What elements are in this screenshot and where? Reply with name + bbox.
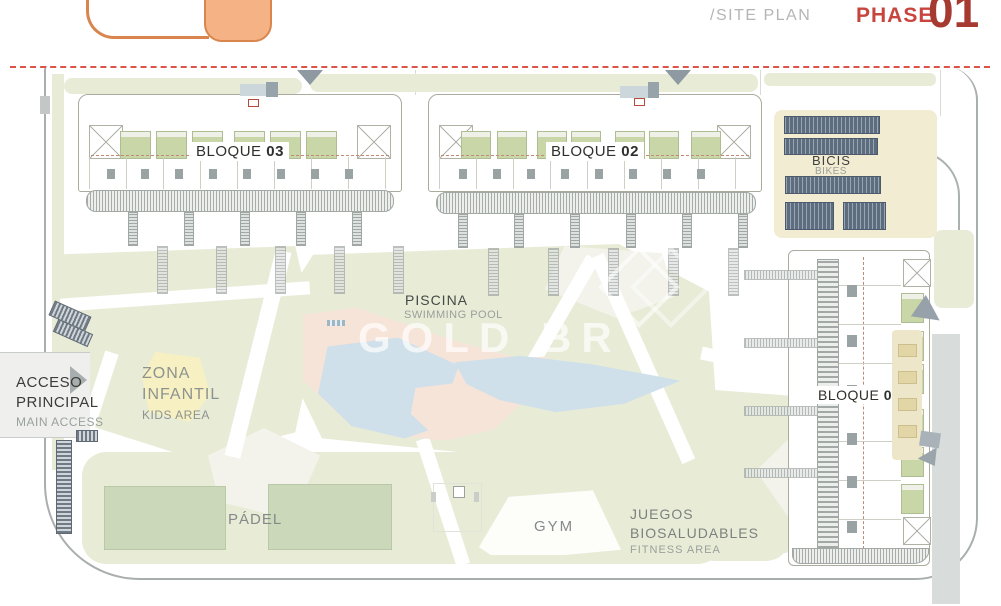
- hedge-path: [334, 246, 345, 294]
- stair-mark: [527, 169, 535, 179]
- equipment-mark: [453, 486, 465, 498]
- planter-box: [898, 398, 917, 411]
- terrace-walkway: [86, 190, 394, 212]
- kids-area-label: KIDS AREA: [142, 408, 220, 422]
- stair-mark: [663, 169, 671, 179]
- stair-mark: [107, 169, 115, 179]
- road-marker: [40, 96, 50, 114]
- hedge-divider: [128, 212, 138, 246]
- acceso-line1: ACCESO: [16, 374, 104, 391]
- rooftop-unit: [620, 86, 648, 98]
- bikes-label: BIKES: [815, 166, 847, 177]
- hedge-divider: [296, 212, 306, 246]
- hedge-divider: [626, 214, 636, 248]
- hedge-divider: [682, 214, 692, 248]
- hedge-path: [157, 246, 168, 294]
- stair-mark: [493, 169, 501, 179]
- rooftop-unit: [648, 82, 659, 98]
- brand-logo-icon: [86, 0, 209, 39]
- hedge-connector: [744, 338, 818, 348]
- swimming-pool-label: SWIMMING POOL: [404, 309, 503, 321]
- rooftop-unit: [240, 84, 266, 96]
- phase-boundary-line: [10, 66, 990, 68]
- site-plan-heading: /SITE PLAN: [710, 7, 811, 25]
- brand-logo-icon: [204, 0, 272, 42]
- phase-label: PHASE: [856, 4, 933, 28]
- path-line: [940, 70, 941, 116]
- juegos-label: JUEGOS BIOSALUDABLES FITNESS AREA: [630, 506, 759, 556]
- parking-strip: [56, 440, 72, 534]
- stair-mark: [141, 169, 149, 179]
- stair-mark: [629, 169, 637, 179]
- hedge-divider: [184, 212, 194, 246]
- zona-infantil-label: ZONA INFANTIL KIDS AREA: [142, 365, 220, 422]
- lawn-strip-top-right: [764, 73, 936, 86]
- acceso-line2: PRINCIPAL: [16, 394, 104, 411]
- terrace-strip: [817, 259, 839, 559]
- stair-core: [903, 517, 931, 545]
- building-bloque-02: BLOQUE 02: [428, 94, 762, 192]
- planter-box: [898, 344, 917, 357]
- gym-label: GYM: [534, 518, 574, 535]
- stair-mark: [277, 169, 285, 179]
- stair-mark: [175, 169, 183, 179]
- hedge-path: [275, 246, 286, 294]
- stair-mark: [697, 169, 705, 179]
- padel-court: [268, 484, 392, 550]
- parking-strip: [76, 430, 98, 442]
- stair-mark: [311, 169, 319, 179]
- juegos-line1: JUEGOS: [630, 506, 759, 522]
- hedge-path: [548, 248, 559, 296]
- main-access-label: MAIN ACCESS: [16, 415, 104, 429]
- padel-label: PÁDEL: [228, 511, 282, 528]
- acceso-principal-label: ACCESO PRINCIPAL MAIN ACCESS: [16, 374, 104, 429]
- hedge-divider: [570, 214, 580, 248]
- bloque-02-label: BLOQUE 02: [429, 143, 761, 161]
- site-plan-page: /SITE PLAN PHASE 01: [0, 0, 1001, 606]
- hedge-connector: [744, 406, 818, 416]
- stair-mark: [847, 285, 857, 297]
- path-line: [760, 70, 761, 95]
- zona-line1: ZONA: [142, 365, 220, 383]
- hedge-divider: [738, 214, 748, 248]
- ramp-marker-icon: [919, 431, 941, 449]
- hedge-path: [728, 248, 739, 296]
- hedge-divider: [240, 212, 250, 246]
- hedge-path: [393, 246, 404, 294]
- stair-mark: [847, 521, 857, 533]
- dimension-marker: [248, 99, 259, 107]
- stair-core: [903, 259, 931, 287]
- pool-steps: [327, 320, 345, 326]
- piscina-label: PISCINA: [405, 292, 468, 308]
- planter-box: [898, 371, 917, 384]
- hedge-path: [608, 248, 619, 296]
- equipment-mark: [431, 492, 436, 502]
- hedge-divider: [458, 214, 468, 248]
- hedge-connector: [744, 468, 818, 478]
- padel-court: [104, 486, 226, 550]
- hedge-connector: [744, 270, 818, 280]
- bike-rack: [843, 202, 886, 230]
- fitness-area-label: FITNESS AREA: [630, 544, 759, 556]
- stair-mark: [847, 433, 857, 445]
- stair-mark: [847, 335, 857, 347]
- dimension-marker: [634, 98, 645, 106]
- terrace-walkway: [436, 192, 756, 214]
- equipment-mark: [474, 492, 479, 502]
- side-road-strip: [932, 334, 960, 604]
- zona-line2: INFANTIL: [142, 386, 220, 404]
- stair-mark: [561, 169, 569, 179]
- stair-mark: [243, 169, 251, 179]
- entrance-marker-icon: [297, 70, 323, 85]
- roof-garden: [901, 484, 924, 514]
- juegos-line2: BIOSALUDABLES: [630, 525, 759, 541]
- stair-mark: [345, 169, 353, 179]
- planter-box: [898, 425, 917, 438]
- hedge-divider: [514, 214, 524, 248]
- bike-rack: [784, 116, 880, 134]
- bike-rack: [785, 176, 881, 194]
- bike-area: BICIS BIKES: [774, 110, 937, 238]
- stair-mark: [459, 169, 467, 179]
- stair-mark: [847, 476, 857, 488]
- terrace-walkway: [792, 548, 930, 564]
- hedge-path: [668, 248, 679, 296]
- stair-mark: [209, 169, 217, 179]
- building-bloque-03: BLOQUE 03: [78, 94, 402, 192]
- hedge-path: [216, 246, 227, 294]
- phase-number: 01: [928, 0, 979, 38]
- entrance-marker-icon: [665, 70, 691, 85]
- hedge-path: [488, 248, 499, 296]
- lawn-patch-right-edge: [934, 230, 974, 308]
- rooftop-unit: [266, 82, 278, 97]
- stair-mark: [595, 169, 603, 179]
- bike-rack: [785, 202, 834, 230]
- hedge-divider: [352, 212, 362, 246]
- bloque-03-label: BLOQUE 03: [79, 143, 401, 161]
